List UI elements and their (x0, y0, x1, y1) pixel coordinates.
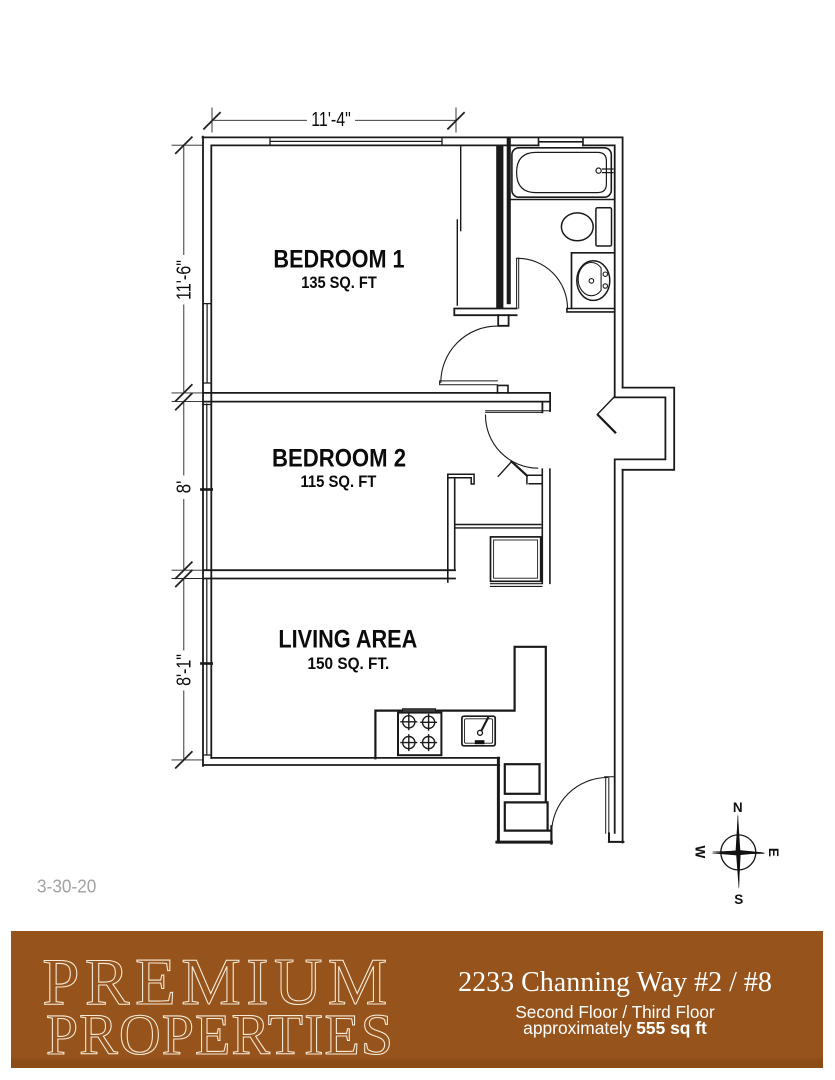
svg-text:LIVING AREA: LIVING AREA (278, 625, 417, 653)
svg-text:BEDROOM 2: BEDROOM 2 (272, 445, 406, 473)
svg-text:11'-6": 11'-6" (173, 260, 195, 300)
svg-text:11'-4": 11'-4" (311, 108, 351, 130)
svg-text:8'-1": 8'-1" (173, 654, 195, 686)
svg-text:150 SQ. FT.: 150 SQ. FT. (307, 656, 389, 674)
svg-text:3-30-20: 3-30-20 (37, 876, 96, 897)
svg-text:S: S (734, 892, 743, 907)
svg-text:N: N (733, 800, 743, 815)
svg-text:BEDROOM 1: BEDROOM 1 (273, 245, 404, 273)
svg-text:135 SQ. FT: 135 SQ. FT (301, 274, 377, 292)
svg-text:8': 8' (172, 481, 195, 494)
svg-text:E: E (766, 848, 781, 857)
svg-text:115 SQ. FT: 115 SQ. FT (300, 473, 376, 491)
svg-text:W: W (693, 846, 708, 859)
